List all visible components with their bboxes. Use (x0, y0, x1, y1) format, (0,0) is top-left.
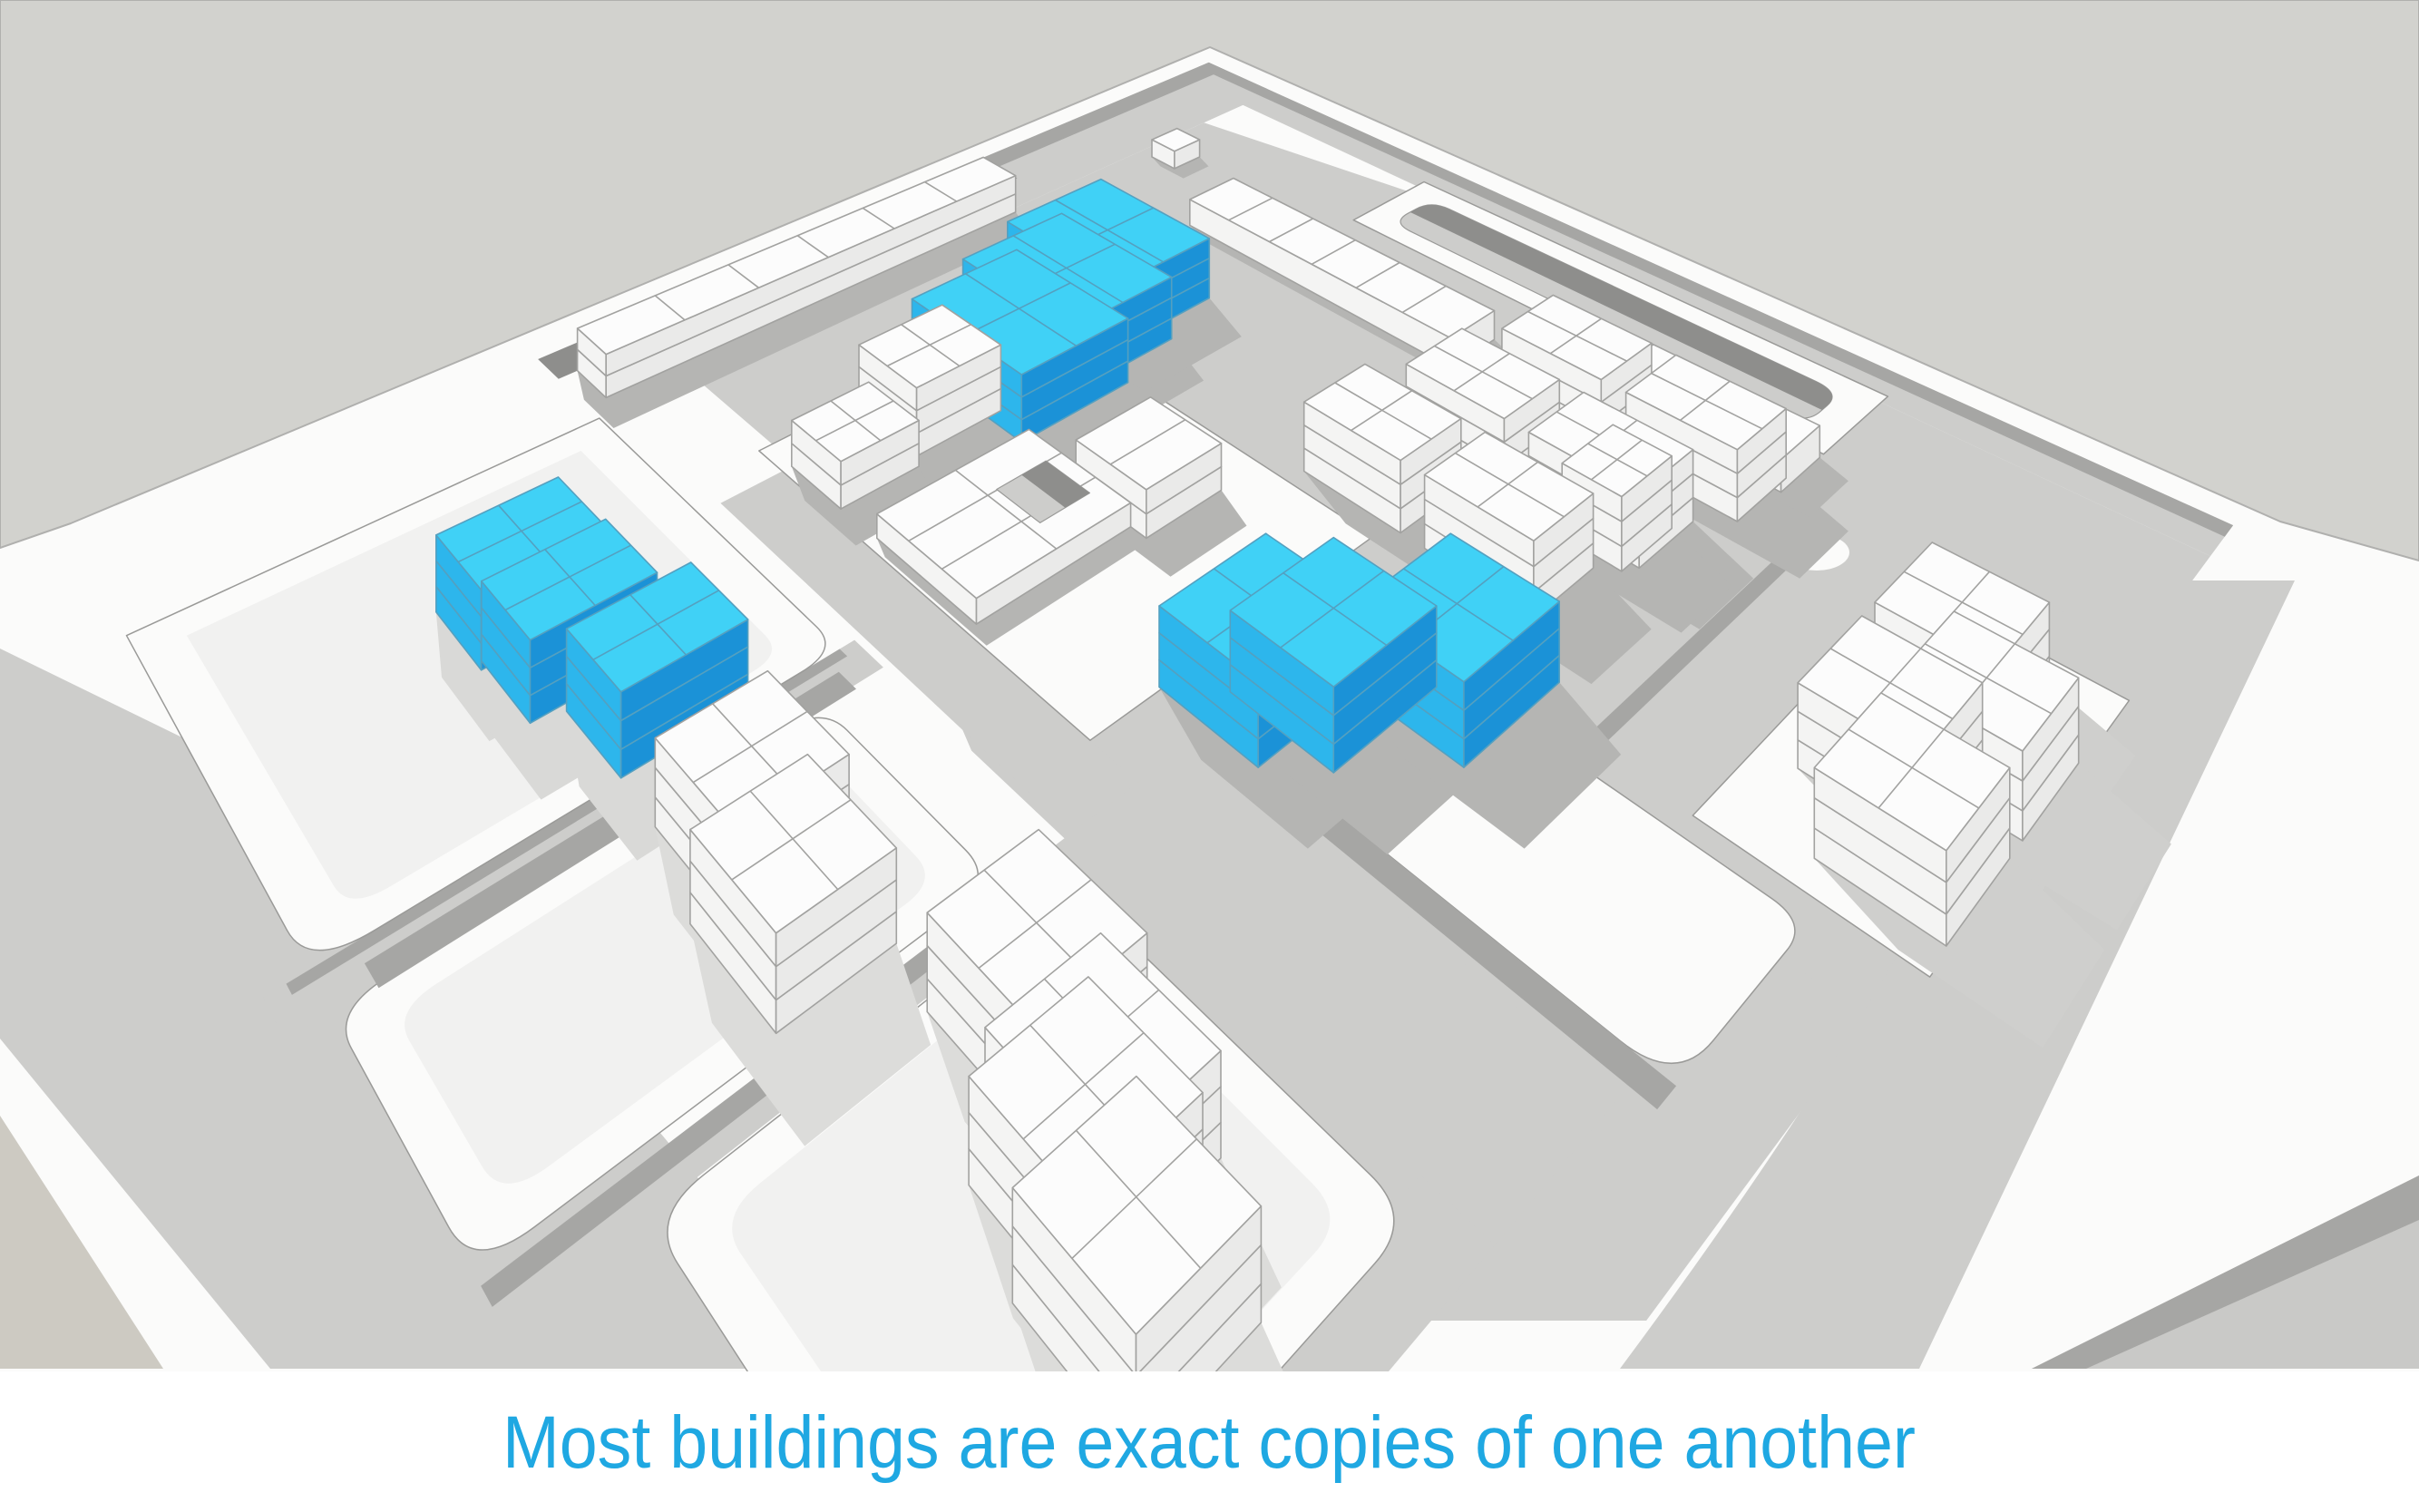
svg-text:Most buildings are exact copie: Most buildings are exact copies of one a… (502, 1401, 1916, 1484)
